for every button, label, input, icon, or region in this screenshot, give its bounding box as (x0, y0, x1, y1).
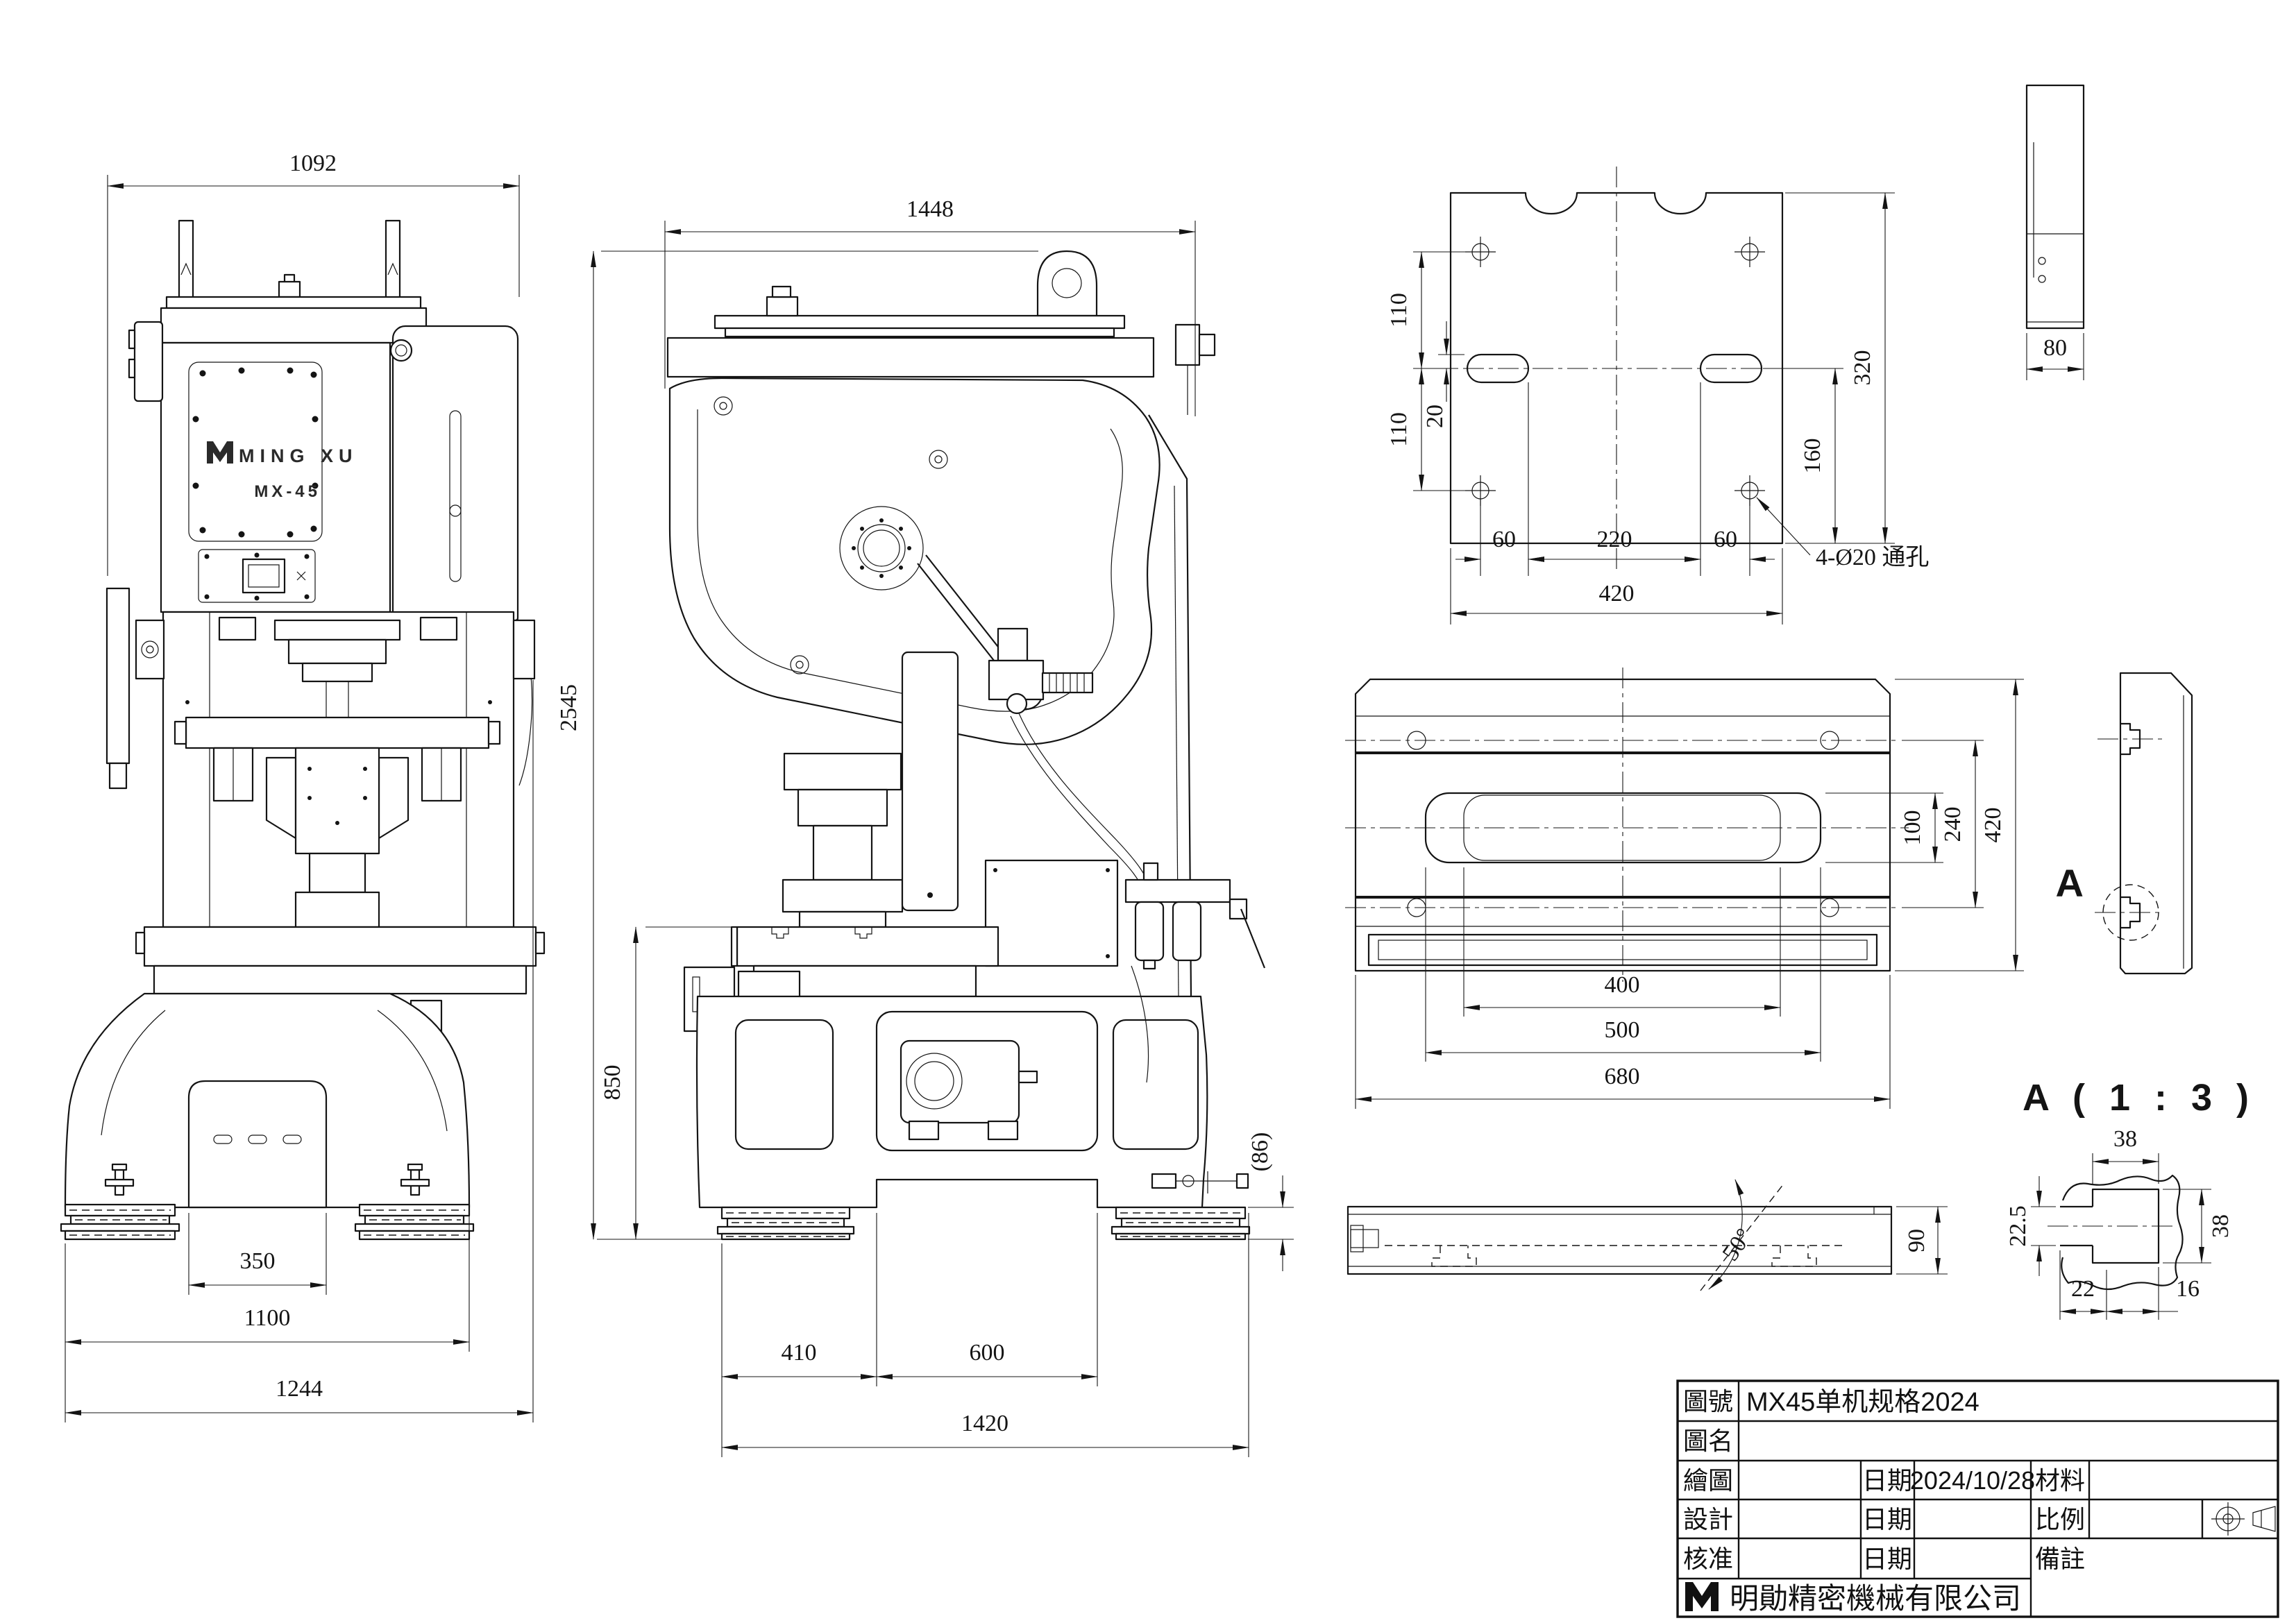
dim-side-overall-height: 2545 (556, 684, 582, 731)
dim-plate-hole-row-bottom: 110 (1386, 412, 1412, 447)
label-remarks: 備註 (2035, 1545, 2085, 1573)
bolster-side-view: A (2056, 673, 2192, 974)
front-view: MING XU MX-45 (61, 221, 544, 1239)
label-date2: 日期 (1862, 1505, 1912, 1533)
dim-front-feet-span: 1100 (244, 1305, 291, 1331)
dim-detail-bottom-right: 16 (2176, 1276, 2200, 1302)
company-logo-icon (1685, 1582, 1719, 1611)
label-drawn: 繪圖 (1683, 1466, 1733, 1495)
detail-a-title: A ( 1 : 3 ) (2023, 1077, 2256, 1119)
label-date3: 日期 (1862, 1545, 1912, 1573)
value-drawn-date: 2024/10/28 (1910, 1466, 2035, 1495)
foot-pad-right (355, 1205, 473, 1239)
side-foot-right (1112, 1207, 1249, 1239)
dim-plate-hole-row-top: 110 (1386, 293, 1412, 328)
dim-side-overall-depth: 1448 (906, 196, 954, 222)
dim-plate-span-center: 220 (1597, 527, 1632, 552)
baseplate-top-view: 110 110 20 160 320 60 220 60 420 4-Ø20 通… (1386, 167, 1929, 624)
label-date1: 日期 (1862, 1466, 1912, 1495)
dim-plate-thickness: 80 (2043, 335, 2067, 361)
plate-hole-note: 4-Ø20 通孔 (1816, 545, 1929, 570)
dim-bolster-slot-span: 400 (1605, 972, 1640, 998)
baseplate-side-view: 80 (2027, 85, 2084, 380)
value-drawing-no: MX45单机规格2024 (1746, 1388, 1980, 1417)
dim-front-pedestal: 350 (240, 1248, 276, 1274)
dim-side-base-depth: 1420 (961, 1411, 1008, 1436)
dim-bolster-hole-rows: 240 (1940, 807, 1966, 842)
dim-plate-width: 420 (1599, 581, 1635, 606)
dim-side-pad-height: (86) (1247, 1132, 1273, 1172)
side-foot-left (718, 1207, 854, 1239)
bolster-front-view: 50° 90 (1348, 1180, 1948, 1291)
company-name: 明勛精密機械有限公司 (1730, 1583, 2021, 1615)
dim-detail-top: 38 (2113, 1126, 2137, 1152)
dim-front-overall-width: 1092 (289, 151, 337, 176)
air-filter-unit (1126, 863, 1265, 969)
dim-bolster-height: 90 (1904, 1229, 1930, 1252)
drawing-sheet: MING XU MX-45 (0, 0, 2296, 1623)
title-block: 圖號 MX45单机规格2024 圖名 繪圖 日期 2024/10/28 材料 設… (1678, 1381, 2278, 1617)
model-text: MX-45 (254, 482, 321, 501)
detail-a-view: A ( 1 : 3 ) 38 22.5 38 22 16 (2005, 1077, 2256, 1320)
dim-plate-slot-to-edge: 160 (1800, 439, 1825, 474)
dim-bolster-width: 680 (1605, 1064, 1640, 1089)
label-scale: 比例 (2035, 1505, 2085, 1533)
detail-marker-label: A (2056, 861, 2084, 905)
foot-pad-left (61, 1205, 179, 1239)
dim-detail-cavity: 38 (2208, 1214, 2234, 1238)
dim-side-base-front: 410 (782, 1340, 817, 1366)
engineering-drawing-canvas: MING XU MX-45 (0, 0, 2296, 1623)
label-drawing-no: 圖號 (1683, 1387, 1733, 1416)
brand-text: MING XU (239, 445, 358, 466)
first-angle-projection-icon (2211, 1502, 2275, 1536)
dim-bolster-slot-height: 100 (1900, 810, 1925, 846)
label-designed: 設計 (1683, 1505, 1733, 1533)
dim-detail-bottom-left: 22 (2071, 1276, 2095, 1302)
bolster-top-view: 100 240 420 400 500 680 (1345, 668, 2024, 1109)
label-material: 材料 (2035, 1466, 2085, 1495)
side-view (668, 251, 1265, 1239)
label-approved: 核准 (1683, 1545, 1733, 1573)
dim-plate-slot-offset: 20 (1422, 405, 1448, 428)
dim-plate-span-left: 60 (1492, 527, 1516, 552)
dim-detail-throat: 22.5 (2005, 1205, 2031, 1247)
dim-front-overall: 1244 (276, 1376, 323, 1402)
label-drawing-name: 圖名 (1683, 1427, 1733, 1455)
dim-side-table-height: 850 (600, 1065, 625, 1101)
dim-side-base-opening: 600 (970, 1340, 1005, 1366)
dim-bolster-outer-span: 500 (1605, 1017, 1640, 1043)
dim-plate-depth: 320 (1850, 350, 1875, 386)
dim-plate-span-right: 60 (1714, 527, 1737, 552)
dim-bolster-depth: 420 (1980, 808, 2006, 843)
